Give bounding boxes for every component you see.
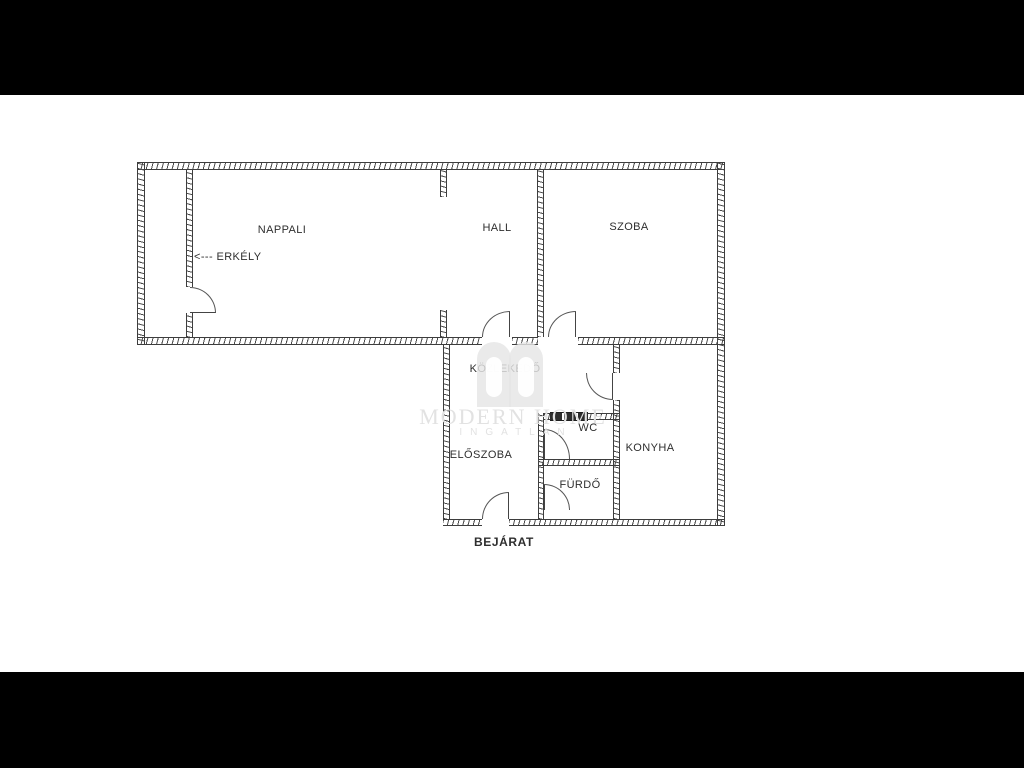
door-arc-szoba [548,311,576,337]
room-label-wc: WC [578,422,597,434]
wall-upper-bottom [578,337,725,345]
wall-bottom [443,519,482,526]
door-arc-hall [482,311,510,337]
letterbox-top-bar [0,0,1024,95]
logo-arch-right [509,342,543,407]
door-arc-konyha [586,373,613,400]
wall-bottom [509,519,725,526]
room-label-konyha: KONYHA [626,442,675,454]
logo-arch-left [477,342,511,407]
watermark-tagline: INGATLAN [459,427,572,438]
wall-wc-furdo-divider [538,459,620,466]
room-label-bejarat: BEJÁRAT [474,535,534,549]
room-label-nappali: NAPPALI [258,224,306,236]
wall-eloszoba-left [443,345,450,519]
modern-home-logo-icon [477,342,543,407]
room-label-furdo: FÜRDŐ [559,479,600,491]
wall-nappali-hall-stub [440,170,447,197]
logo-slot [518,357,534,397]
room-label-eloszoba: ELŐSZOBA [450,449,513,461]
wall-konyha-left [613,345,620,373]
letterbox-bottom-bar [0,672,1024,768]
wall-balcony-divider [186,170,193,287]
door-arc-bejarat [482,492,509,519]
wall-upper-bottom [137,337,482,345]
wall-balcony-divider [186,313,193,337]
room-label-szoba: SZOBA [609,221,648,233]
logo-slot [486,357,502,397]
floorplan-canvas: NAPPALI HALL SZOBA <--- ERKÉLY KÖZLEKEDŐ… [0,95,1024,672]
wall-left [137,162,145,345]
room-label-erkely: <--- ERKÉLY [194,251,261,263]
wall-nappali-hall-stub [440,310,447,337]
door-arc-erkely [190,287,216,313]
room-label-hall: HALL [482,222,511,234]
wall-hall-szoba [537,170,544,337]
wall-konyha-left [613,400,620,519]
wall-top [137,162,725,170]
floorplan-image: NAPPALI HALL SZOBA <--- ERKÉLY KÖZLEKEDŐ… [0,0,1024,768]
